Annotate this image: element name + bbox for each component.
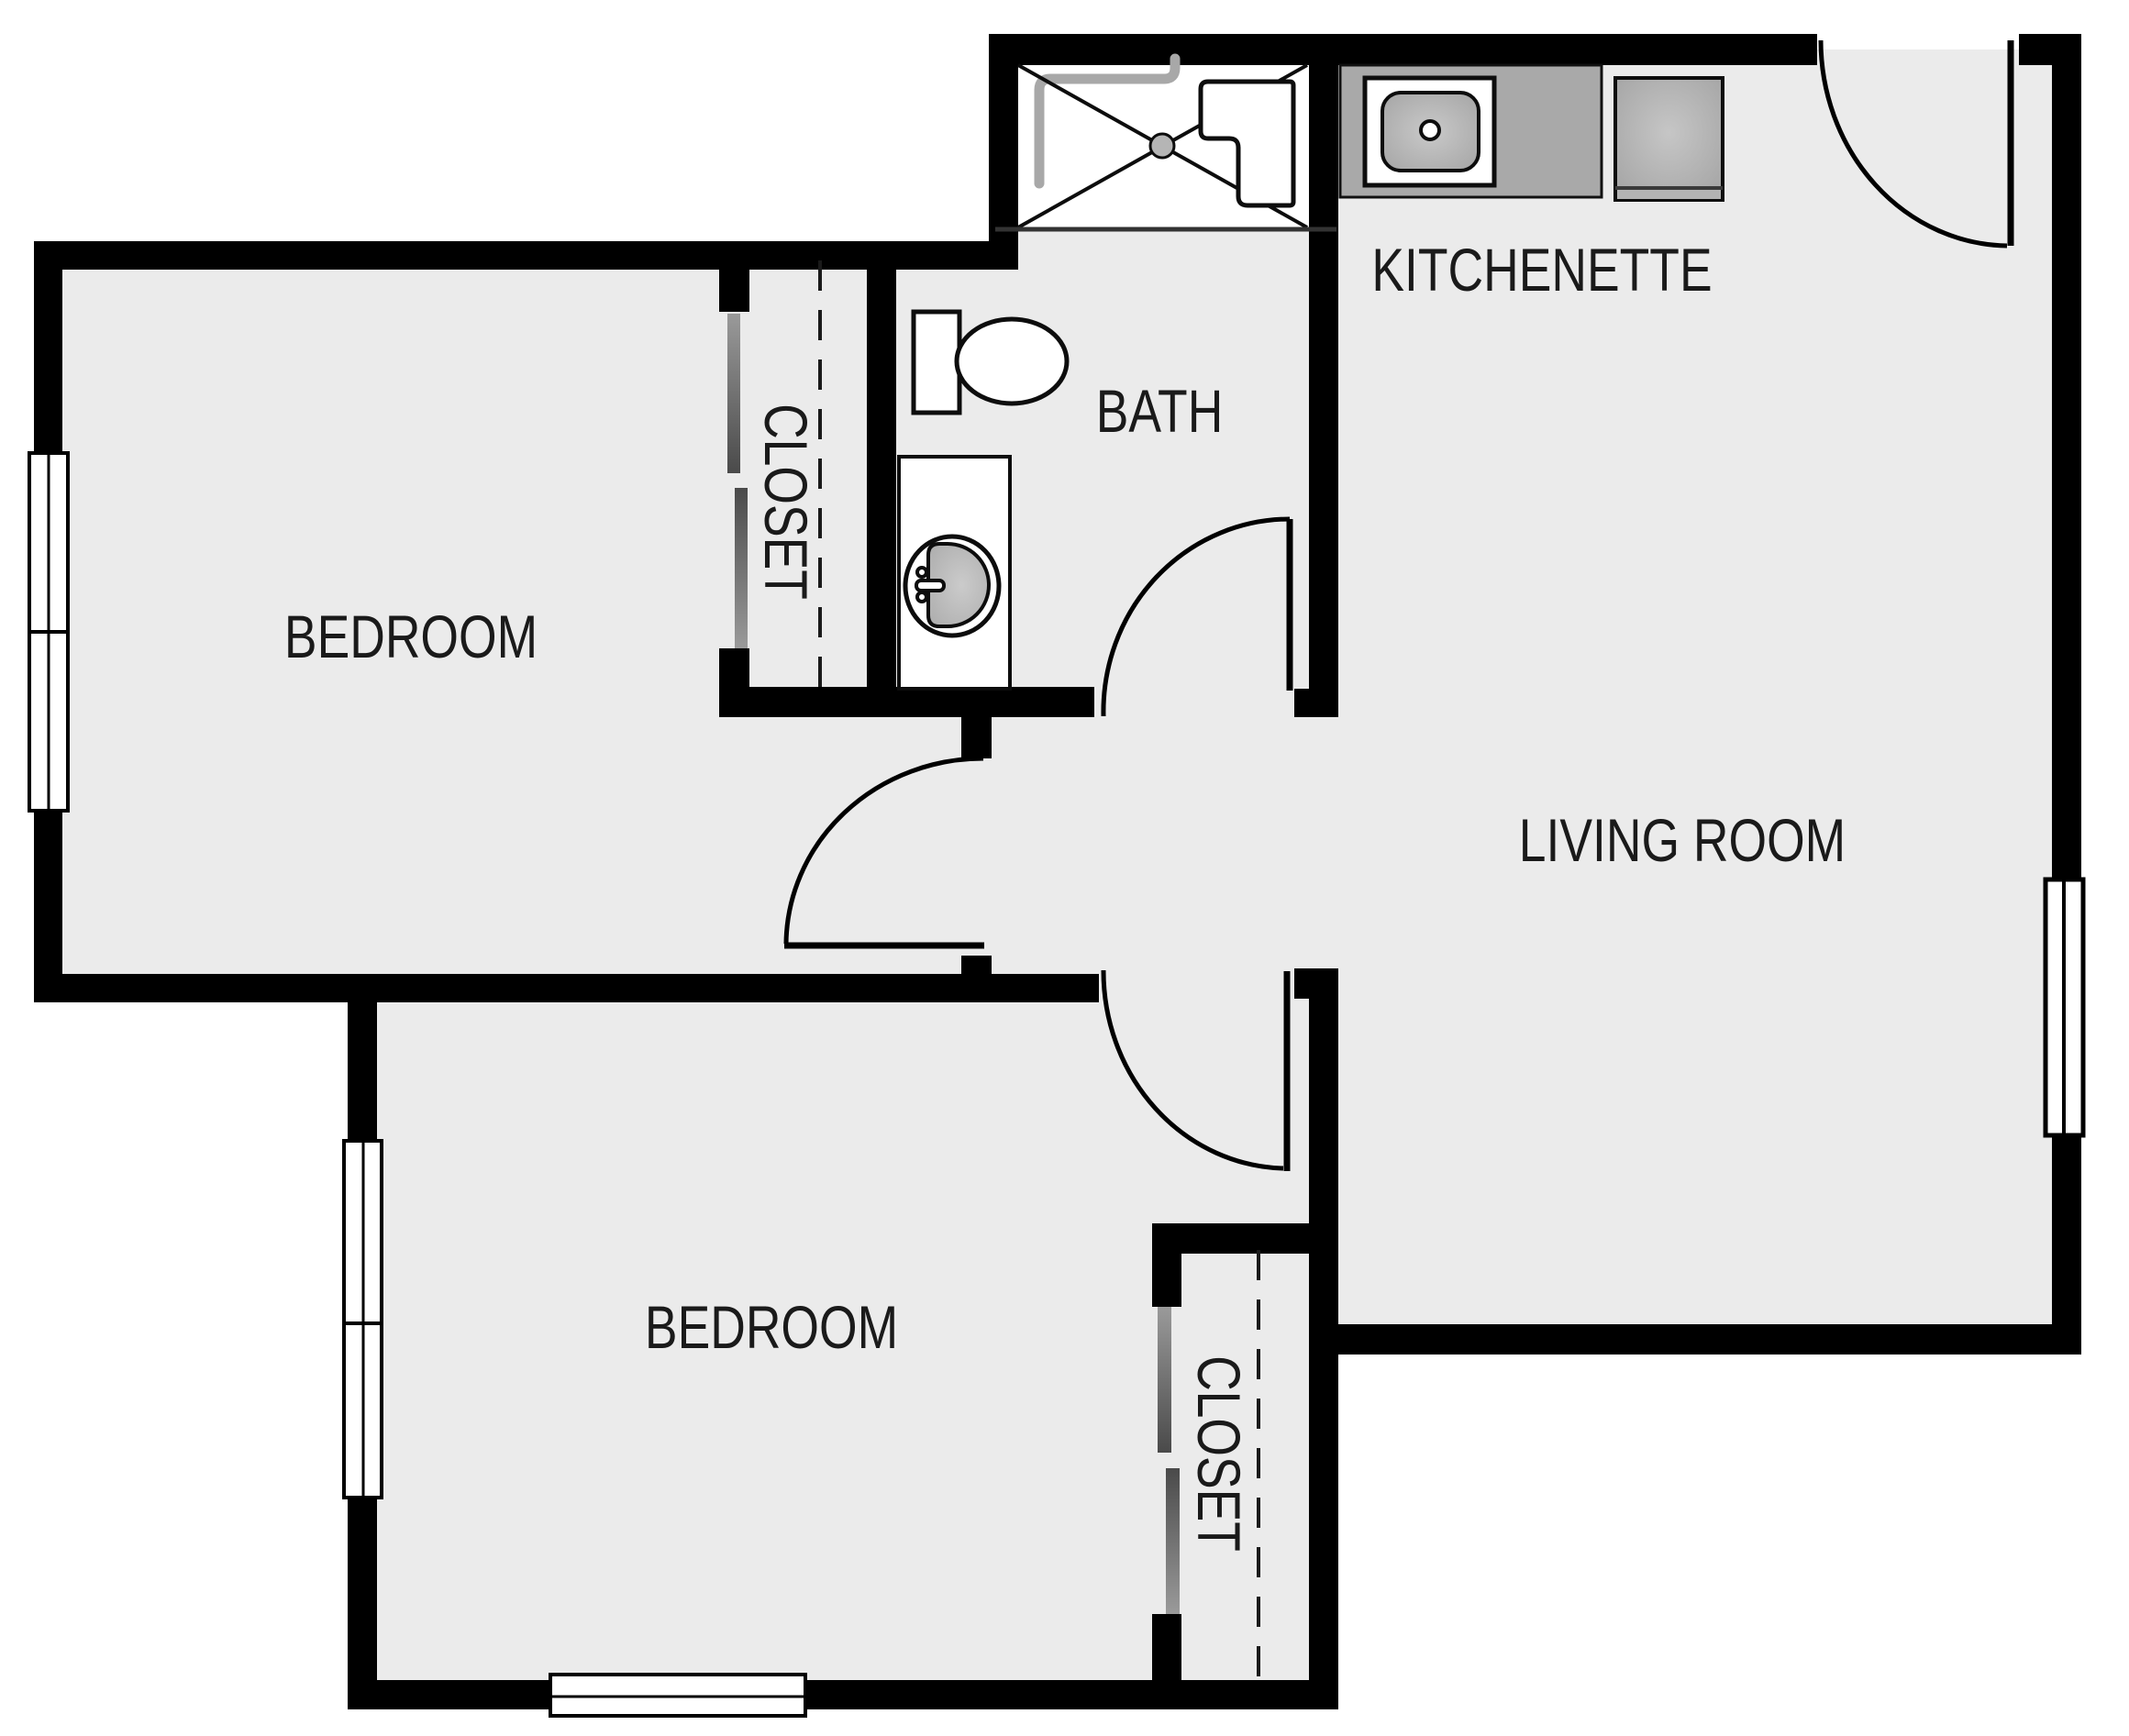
svg-text:BEDROOM: BEDROOM	[645, 1294, 898, 1362]
svg-text:KITCHENETTE: KITCHENETTE	[1371, 237, 1712, 304]
svg-text:LIVING ROOM: LIVING ROOM	[1519, 807, 1846, 875]
svg-text:CLOSET: CLOSET	[1185, 1355, 1253, 1552]
svg-text:BATH: BATH	[1096, 378, 1224, 446]
svg-text:BEDROOM: BEDROOM	[284, 603, 538, 671]
svg-text:CLOSET: CLOSET	[752, 404, 820, 600]
